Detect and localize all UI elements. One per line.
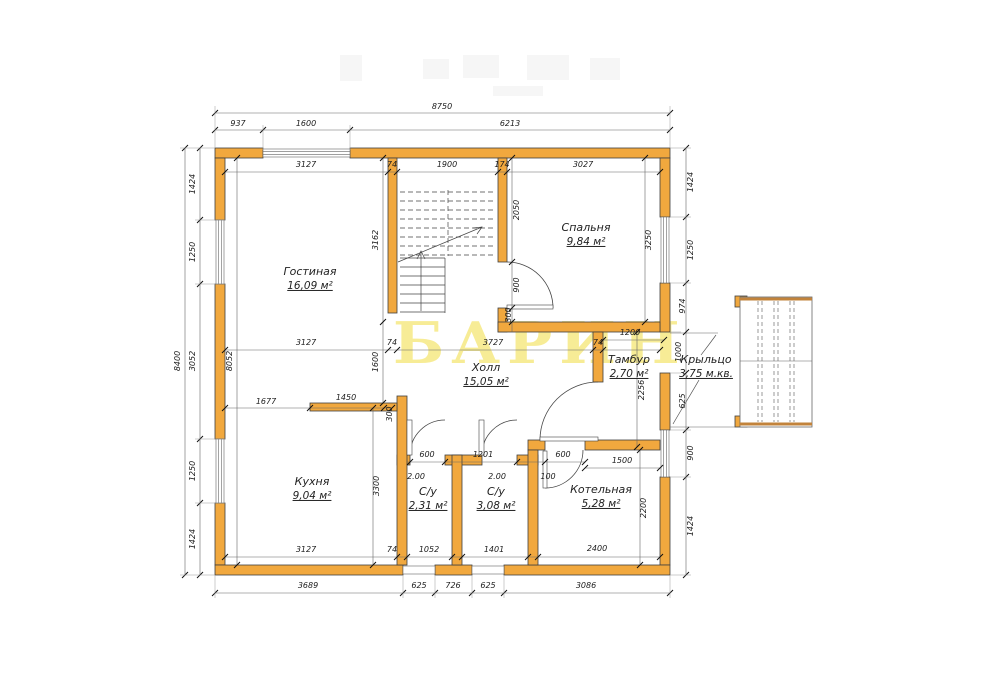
room-label-3: Холл15,05 м² xyxy=(463,360,509,390)
dimension-label: 3027 xyxy=(573,161,593,169)
dimension-label: 74 xyxy=(593,339,603,347)
room-label-7: С/у2,31 м² xyxy=(409,484,448,514)
dimension-label: 2.00 xyxy=(488,473,506,481)
dimension-label: 1500 xyxy=(612,457,632,465)
dimension-label: 1424 xyxy=(189,529,197,549)
dimension-label: 8052 xyxy=(226,351,234,371)
dimension-label: 3127 xyxy=(296,546,316,554)
dimension-label: 1424 xyxy=(687,172,695,192)
dimension-label: 3689 xyxy=(298,582,318,590)
text-labels-layer: 8750937160062133127741900174302784001424… xyxy=(0,0,993,696)
room-area: 2,31 м² xyxy=(409,499,448,514)
dimension-label: 3162 xyxy=(372,230,380,250)
dimension-label: 625 xyxy=(679,393,687,408)
room-label-1: Гостиная16,09 м² xyxy=(283,264,336,294)
dimension-label: 726 xyxy=(445,582,460,590)
dimension-label: 74 xyxy=(387,161,397,169)
room-label-2: Спальня9,84 м² xyxy=(562,220,611,250)
room-label-9: Котельная5,28 м² xyxy=(570,482,632,512)
dimension-label: 74 xyxy=(387,339,397,347)
room-label-5: Крыльцо3,75 м.кв. xyxy=(679,352,733,382)
dimension-label: 974 xyxy=(679,298,687,313)
room-name: Котельная xyxy=(570,482,632,497)
dimension-label: 8400 xyxy=(174,351,182,371)
dimension-label: 74 xyxy=(387,546,397,554)
dimension-label: 300 xyxy=(386,406,394,421)
dimension-label: 1450 xyxy=(336,394,356,402)
dimension-label: 6213 xyxy=(500,120,520,128)
dimension-label: 2256 xyxy=(638,380,646,400)
floor-plan-canvas: БАРИН xyxy=(0,0,993,696)
dimension-label: 2050 xyxy=(513,200,521,220)
dimension-label: 625 xyxy=(411,582,426,590)
dimension-label: 1424 xyxy=(189,174,197,194)
dimension-label: 3727 xyxy=(483,339,503,347)
dimension-label: 625 xyxy=(480,582,495,590)
room-name: Холл xyxy=(463,360,509,375)
dimension-label: 3127 xyxy=(296,339,316,347)
room-area: 5,28 м² xyxy=(570,497,632,512)
dimension-label: 1200 xyxy=(620,329,640,337)
dimension-label: 900 xyxy=(687,445,695,460)
dimension-label: 937 xyxy=(230,120,245,128)
dimension-label: 600 xyxy=(555,451,570,459)
room-area: 3,75 м.кв. xyxy=(679,367,733,382)
dimension-label: 3086 xyxy=(576,582,596,590)
dimension-label: 2400 xyxy=(587,545,607,553)
room-name: Спальня xyxy=(562,220,611,235)
dimension-label: 1424 xyxy=(687,516,695,536)
dimension-label: 1250 xyxy=(189,461,197,481)
dimension-label: 300 xyxy=(505,307,513,322)
dimension-label: 174 xyxy=(494,161,509,169)
room-label-8: С/у3,08 м² xyxy=(477,484,516,514)
dimension-label: 1401 xyxy=(484,546,504,554)
dimension-label: 1677 xyxy=(256,398,276,406)
dimension-label: 8750 xyxy=(432,103,452,111)
dimension-label: 1250 xyxy=(687,240,695,260)
room-name: Тамбур xyxy=(608,352,650,367)
dimension-label: 600 xyxy=(419,451,434,459)
room-name: С/у xyxy=(477,484,516,499)
dimension-label: 2200 xyxy=(640,498,648,518)
dimension-label: 3300 xyxy=(373,476,381,496)
room-area: 3,08 м² xyxy=(477,499,516,514)
dimension-label: 3052 xyxy=(189,351,197,371)
dimension-label: 3250 xyxy=(645,230,653,250)
dimension-label: 1900 xyxy=(437,161,457,169)
dimension-label: 1600 xyxy=(296,120,316,128)
dimension-label: 3127 xyxy=(296,161,316,169)
dimension-label: 1250 xyxy=(189,242,197,262)
room-name: Гостиная xyxy=(283,264,336,279)
room-label-4: Тамбур2,70 м² xyxy=(608,352,650,382)
dimension-label: 2.00 xyxy=(407,473,425,481)
dimension-label: 100 xyxy=(540,473,555,481)
room-area: 9,84 м² xyxy=(562,235,611,250)
room-area: 9,04 м² xyxy=(293,489,332,504)
room-name: Крыльцо xyxy=(679,352,733,367)
room-name: Кухня xyxy=(293,474,332,489)
room-area: 15,05 м² xyxy=(463,375,509,390)
room-label-6: Кухня9,04 м² xyxy=(293,474,332,504)
dimension-label: 1052 xyxy=(419,546,439,554)
room-area: 16,09 м² xyxy=(283,279,336,294)
dimension-label: 1201 xyxy=(473,451,493,459)
room-area: 2,70 м² xyxy=(608,367,650,382)
room-name: С/у xyxy=(409,484,448,499)
dimension-label: 900 xyxy=(513,277,521,292)
dimension-label: 1600 xyxy=(372,352,380,372)
